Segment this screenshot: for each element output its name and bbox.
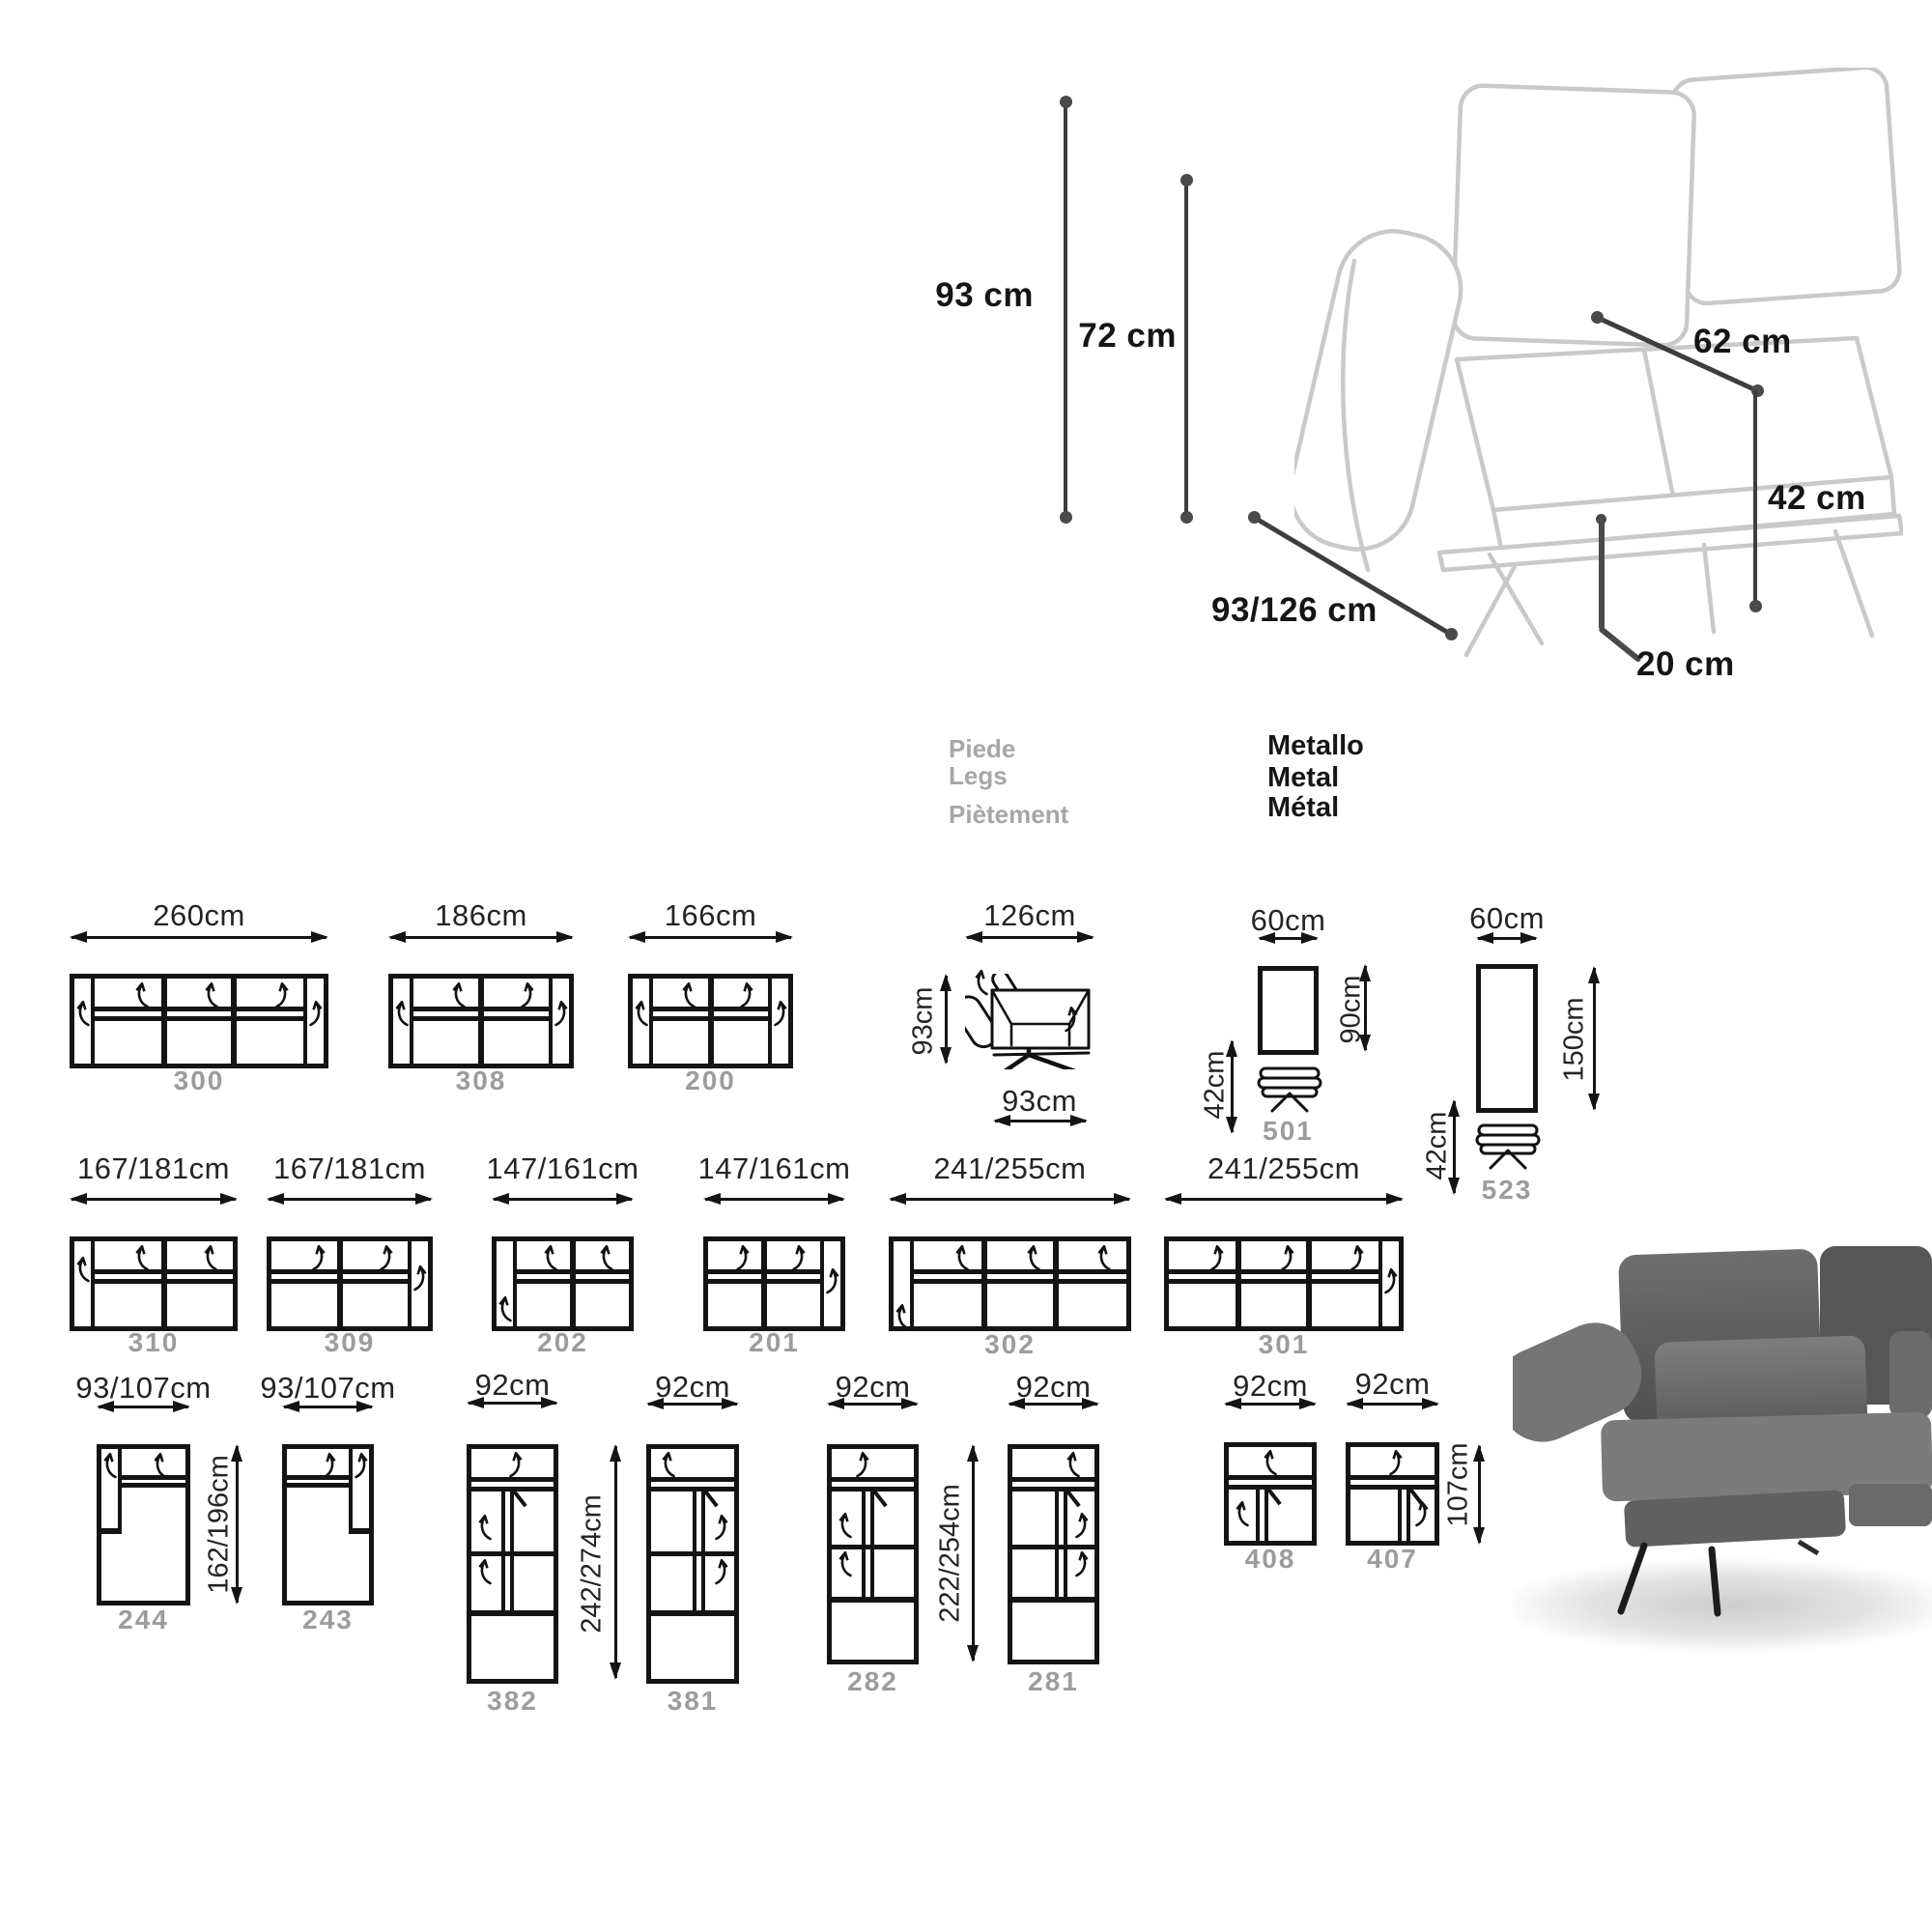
module-308 [388,974,574,1068]
recline-arrow-icon [1278,1243,1296,1272]
module-408-width-arrow [1226,1403,1315,1406]
recline-arrow-icon [152,1451,170,1480]
seat-divider [708,979,714,1064]
module-301-code: 301 [1259,1329,1310,1360]
recline-arrow-icon [894,1302,912,1331]
module-281-width-label: 92cm [1016,1370,1092,1405]
module-282-width-arrow [829,1403,917,1406]
recline-arrow-icon [737,980,755,1009]
module-200-width-arrow [630,936,791,939]
module-201-width-label: 147/161cm [698,1151,851,1186]
side-dim-arrow [1593,968,1596,1109]
recline-arrow-icon [953,1243,972,1272]
module-244-width-arrow [99,1406,188,1408]
side-backrest-line [1264,1490,1268,1541]
seat-divider [231,979,237,1064]
backrest-line [1012,1487,1094,1492]
recline-arrow-icon [133,1243,152,1272]
module-523 [1476,964,1538,1113]
module-301-width-label: 241/255cm [1207,1151,1360,1186]
module-ARM-depth-label: 93cm [1002,1084,1077,1119]
side-dim-arrow [1453,1101,1456,1193]
section-divider [1012,1597,1094,1603]
module-309-width-label: 167/181cm [273,1151,426,1186]
module-523-width-label: 60cm [1469,901,1545,936]
backrest-line [914,1269,1126,1274]
module-523-code: 523 [1482,1175,1533,1206]
recline-arrow-icon [542,1243,560,1272]
module-202 [492,1236,634,1331]
recline-arrow-icon [202,1243,220,1272]
recline-arrow-icon [1065,1450,1083,1479]
module-243-code: 243 [302,1605,354,1635]
side-dim-label: 150cm [1559,997,1591,1081]
recline-arrow-icon [272,980,291,1009]
module-ARM-depth-arrow [995,1120,1086,1122]
module-302-width-label: 241/255cm [934,1151,1087,1186]
recline-arrow-icon [476,1513,495,1542]
recline-arrow-icon [789,1243,808,1272]
module-381-width-label: 92cm [655,1370,730,1405]
armrest-cap [349,1528,369,1534]
seat-divider [761,1241,767,1326]
module-201-code: 201 [749,1327,800,1358]
module-ARM [965,974,1094,1069]
backrest-line [1169,1279,1378,1284]
side-backrest-line [870,1492,874,1597]
recline-arrow-icon [771,999,789,1028]
module-302-width-arrow [891,1198,1129,1201]
recline-arrow-icon [497,1294,515,1323]
armrest-cap [101,1528,122,1534]
recline-arrow-icon [1072,1511,1091,1540]
module-302 [889,1236,1131,1331]
module-407-width-label: 92cm [1355,1367,1431,1402]
module-382 [467,1444,558,1684]
module-381-code: 381 [668,1686,719,1717]
recline-arrow-icon [506,1450,525,1479]
module-243-width-label: 93/107cm [260,1371,395,1406]
recline-arrow-icon [552,999,570,1028]
module-201 [703,1236,845,1331]
seat-divider [1236,1241,1241,1326]
side-backrest-line [1064,1492,1067,1597]
recline-arrow-icon [74,999,93,1028]
side-backrest-line [693,1492,696,1610]
module-ARM-width-label: 126cm [983,898,1076,933]
module-310-width-label: 167/181cm [77,1151,230,1186]
section-divider [471,1610,554,1616]
module-381-width-arrow [648,1403,737,1406]
module-300-width-arrow [71,936,327,939]
recline-arrow-icon [1412,1499,1431,1528]
seat-divider [1053,1241,1059,1326]
module-501 [1258,966,1319,1055]
module-301-width-arrow [1166,1198,1402,1201]
recline-arrow-icon [74,1255,93,1284]
module-243 [282,1444,374,1605]
module-308-code: 308 [456,1065,507,1096]
side-dim-arrow [1364,966,1367,1050]
module-244-code: 244 [118,1605,169,1635]
backrest-line [832,1477,914,1482]
recline-arrow-icon [320,1451,338,1480]
recline-arrow-icon [393,999,412,1028]
module-244 [97,1444,190,1605]
module-201-width-arrow [705,1198,843,1201]
recline-arrow-icon [598,1243,616,1272]
side-backrest-line [701,1492,705,1610]
side-dim-label: 42cm [1200,1051,1232,1120]
side-dim-label: 107cm [1443,1442,1475,1526]
module-501-code: 501 [1263,1116,1314,1147]
side-dim-arrow [972,1446,975,1661]
seat-divider [337,1241,343,1326]
module-407-width-arrow [1348,1403,1437,1406]
module-300-code: 300 [174,1065,225,1096]
module-202-code: 202 [537,1327,588,1358]
recline-arrow-icon [1348,1243,1366,1272]
module-310-width-arrow [71,1198,236,1201]
side-dim-arrow [236,1446,239,1603]
side-dim-arrow [945,976,948,1063]
backrest-line [1350,1485,1435,1490]
backrest-line [914,1279,1126,1284]
recline-arrow-icon [633,999,651,1028]
recline-arrow-icon [1025,1243,1043,1272]
recline-arrow-icon [101,1451,120,1480]
side-backrest-line [862,1492,866,1597]
module-310 [70,1236,238,1331]
module-501-width-arrow [1260,937,1317,940]
seat-divider [161,1241,167,1326]
seat-divider [161,979,167,1064]
module-200-width-label: 166cm [665,898,757,933]
section-divider [651,1610,734,1616]
module-382-width-label: 92cm [475,1368,551,1403]
module-301 [1164,1236,1404,1331]
module-282 [827,1444,919,1664]
recline-arrow-icon [837,1549,855,1578]
recline-arrow-icon [1234,1499,1252,1528]
section-divider [832,1597,914,1603]
side-backrest-line [510,1492,514,1610]
side-dim-label: 222/254cm [935,1484,967,1623]
recline-arrow-icon [518,980,536,1009]
recline-arrow-icon [853,1450,871,1479]
recline-arrow-icon [1095,1243,1114,1272]
recline-arrow-icon [1207,1243,1226,1272]
module-310-code: 310 [128,1327,180,1358]
backrest-line [122,1483,185,1488]
recline-arrow-icon [1381,1266,1400,1295]
recline-arrow-icon [411,1264,429,1293]
module-281-width-arrow [1009,1403,1097,1406]
module-309 [267,1236,433,1331]
module-309-code: 309 [325,1327,376,1358]
recline-arrow-icon [133,980,152,1009]
sofa-photo [1513,1246,1932,1690]
module-381 [646,1444,739,1684]
backrest-line [287,1483,349,1488]
recline-arrow-icon [823,1266,841,1295]
backrest-line [95,1016,303,1021]
recline-arrow-icon [712,1513,730,1542]
module-200-code: 200 [685,1065,736,1096]
side-backrest-line [1256,1490,1260,1541]
side-backrest-line [1406,1490,1410,1541]
side-dim-arrow [1231,1041,1234,1132]
side-dim-arrow [1478,1446,1481,1543]
seat-divider [1306,1241,1312,1326]
recline-arrow-icon [680,980,698,1009]
side-dim-label: 93cm [908,987,940,1056]
recline-arrow-icon [1062,1005,1080,1034]
module-200 [628,974,793,1068]
module-281 [1008,1444,1099,1664]
side-backrest-line [1055,1492,1059,1597]
module-282-width-label: 92cm [836,1370,911,1405]
module-300 [70,974,328,1068]
module-408-code: 408 [1245,1544,1296,1575]
module-ARM-width-arrow [967,936,1093,939]
sofa-spec-sheet: 93 cm 72 cm 62 cm 42 cm 93/126 cm 20 cm … [0,0,1932,1932]
recline-arrow-icon [712,1557,730,1586]
recline-arrow-icon [660,1450,678,1479]
backrest-line [287,1475,349,1480]
photo-shadow [1513,1557,1932,1654]
recline-arrow-icon [733,1243,752,1272]
module-243-width-arrow [284,1406,372,1408]
module-408-width-label: 92cm [1233,1369,1308,1404]
side-dim-label: 42cm [1422,1112,1454,1180]
pouf-side-view [1474,1123,1542,1170]
recline-arrow-icon [203,980,221,1009]
module-382-width-arrow [469,1402,556,1405]
side-backrest-line [501,1492,505,1610]
pouf-side-view [1256,1066,1323,1113]
module-300-width-label: 260cm [153,898,245,933]
seat-divider [478,979,484,1064]
recline-arrow-icon [837,1511,855,1540]
recline-arrow-icon [352,1451,370,1480]
side-dim-label: 242/274cm [577,1494,609,1634]
module-523-width-arrow [1478,937,1536,940]
module-282-code: 282 [847,1666,898,1697]
seat-divider [570,1241,576,1326]
module-407-code: 407 [1367,1544,1418,1575]
module-408 [1224,1442,1317,1546]
side-dim-arrow [614,1446,617,1678]
recline-arrow-icon [1072,1549,1091,1578]
seat-divider [981,1241,987,1326]
module-309-width-arrow [269,1198,431,1201]
module-302-code: 302 [984,1329,1036,1360]
module-308-width-arrow [390,936,572,939]
module-202-width-label: 147/161cm [487,1151,639,1186]
recline-arrow-icon [309,1243,327,1272]
recline-arrow-icon [377,1243,395,1272]
recline-arrow-icon [973,968,991,997]
side-backrest-line [1398,1490,1402,1541]
side-dim-label: 162/196cm [204,1455,236,1594]
module-308-width-label: 186cm [435,898,527,933]
recline-arrow-icon [476,1557,495,1586]
recline-arrow-icon [450,980,469,1009]
module-202-width-arrow [494,1198,632,1201]
recline-arrow-icon [306,999,325,1028]
recline-arrow-icon [1386,1448,1405,1477]
recline-arrow-icon [1262,1448,1280,1477]
side-dim-label: 90cm [1336,976,1368,1044]
module-407 [1346,1442,1439,1546]
module-382-code: 382 [487,1686,538,1717]
module-281-code: 281 [1028,1666,1079,1697]
